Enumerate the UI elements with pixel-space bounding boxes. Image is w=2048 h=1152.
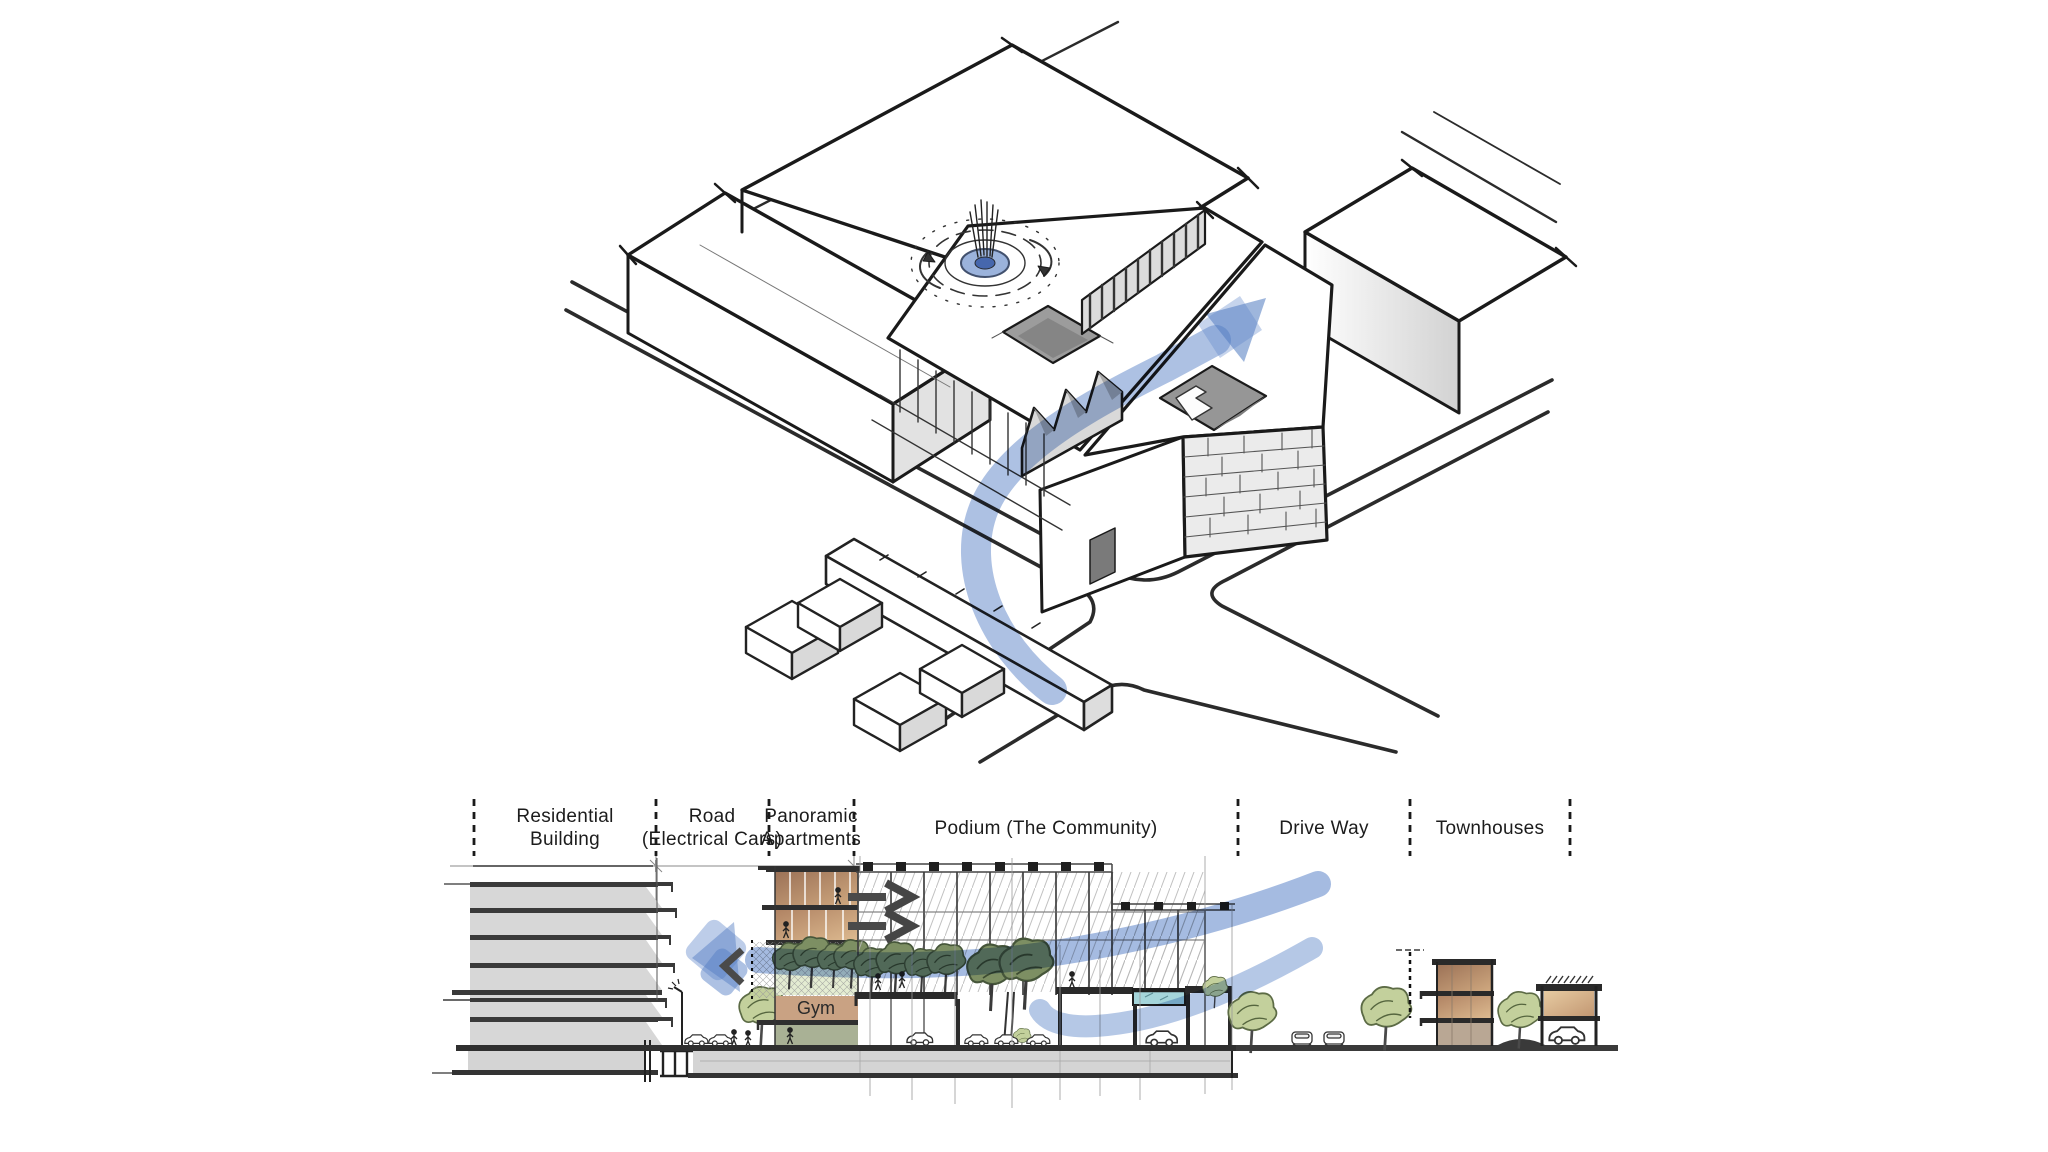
car-icon (1549, 1027, 1584, 1044)
car-icon (965, 1035, 988, 1046)
deck-slab (856, 992, 956, 999)
car-icon (685, 1035, 708, 1046)
ground-floor-band (775, 1025, 858, 1045)
apartment-floor (775, 872, 858, 905)
car-icon (907, 1033, 933, 1045)
pedestrian-icon (731, 1030, 737, 1046)
gym-label: Gym (797, 998, 835, 1018)
driveway-section (1292, 987, 1411, 1050)
section-label-residential-building-line2: Building (530, 829, 600, 850)
podium-basement (688, 1051, 1238, 1078)
section-label-road-line1: Road (689, 806, 736, 827)
section-label-driveway: Drive Way (1279, 818, 1369, 839)
section-label-residential-building-line1: Residential (516, 806, 613, 827)
building-block-east (1305, 160, 1576, 413)
deck-slab (1056, 987, 1133, 994)
section-label-townhouses: Townhouses (1436, 818, 1545, 839)
concept-diagram-page: Residential Building Road (Electrical Ca… (0, 0, 2048, 1152)
residential-basement (468, 1051, 646, 1072)
tree-icon (1228, 992, 1276, 1053)
car-icon (709, 1035, 732, 1046)
car-icon (1292, 1032, 1312, 1046)
section-drawing: Residential Building Road (Electrical Ca… (432, 799, 1618, 1108)
townhouse-floor (1437, 1023, 1491, 1045)
brick-facade (1183, 427, 1327, 557)
podium-southwest-wall (1040, 437, 1185, 612)
townhouse-floor (1437, 965, 1491, 991)
car-icon (1146, 1031, 1177, 1046)
townhouse-section (1396, 950, 1602, 1049)
concept-diagram-canvas: Residential Building Road (Electrical Ca… (0, 0, 2048, 1152)
car-icon (1324, 1032, 1344, 1046)
townhouse-floor (1437, 996, 1491, 1018)
section-label-apartments-line1: Panoramic (764, 806, 858, 827)
site-plan-sketch (566, 22, 1576, 762)
tree-icon (1361, 987, 1411, 1050)
section-label-podium: Podium (The Community) (934, 818, 1157, 839)
carport (1536, 976, 1602, 1046)
pedestrian-icon (745, 1031, 751, 1047)
solar-panel-icon (1546, 976, 1593, 983)
section-label-apartments-line2: Apartments (761, 829, 861, 850)
tree-icon (1498, 992, 1543, 1049)
street-lamp (668, 979, 682, 1046)
